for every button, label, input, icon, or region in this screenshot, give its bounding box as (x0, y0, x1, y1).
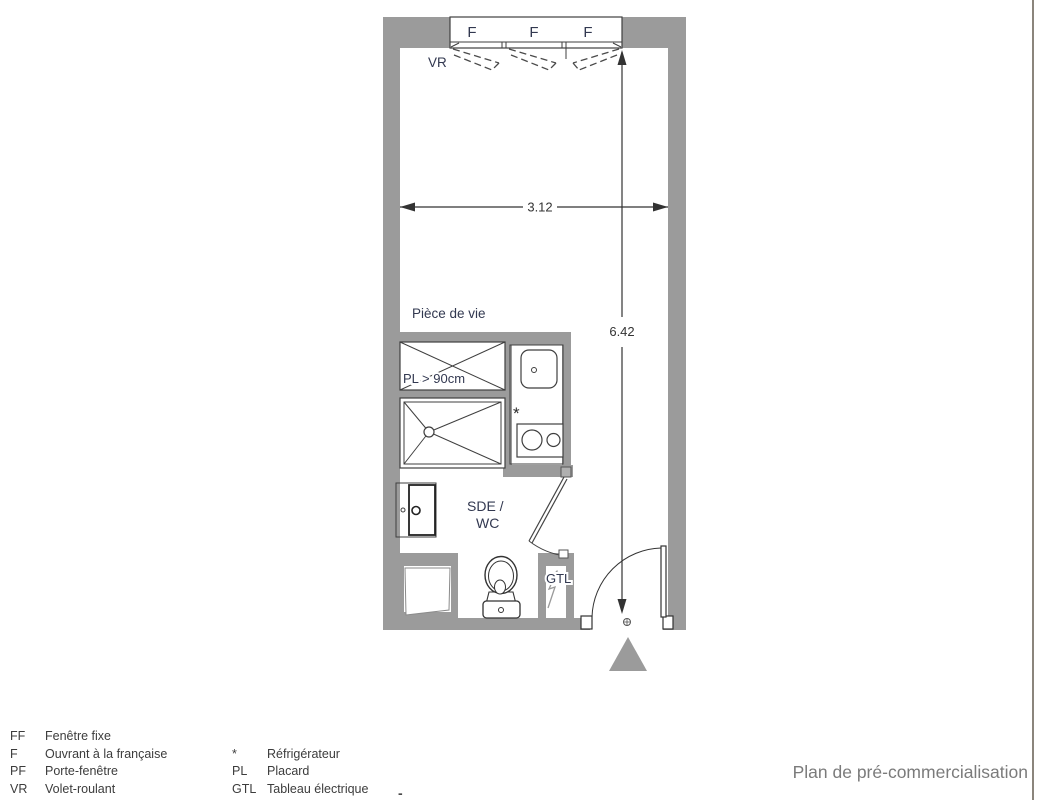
closet-label: PL > 90cm (403, 371, 465, 386)
legend-abbr: GTL (232, 781, 267, 799)
wall-left (383, 17, 400, 630)
legend-abbr: PF (10, 763, 45, 781)
window-pane-label-3: F (583, 24, 592, 41)
wall-storage-right (451, 566, 458, 618)
legend-abbr: * (232, 746, 267, 764)
electric-panel-label: GTL (546, 571, 571, 586)
closet: PL > 90cm (400, 342, 505, 390)
wall-storage-top (397, 553, 458, 566)
bathroom-door (529, 467, 571, 558)
legend-row: *Réfrigérateur (232, 746, 368, 764)
door-leaf (661, 546, 666, 617)
toilet-tank (483, 601, 520, 618)
legend-label: Porte-fenêtre (45, 764, 118, 778)
wall-gtl-left (538, 566, 546, 618)
sheet-right-border (1032, 0, 1034, 800)
window-pane-label-2: F (529, 24, 538, 41)
wall-bottom-left (383, 618, 590, 630)
wall-gtl-top (538, 553, 574, 566)
kitchen-sink (521, 350, 557, 388)
window-swing-dashes (453, 48, 619, 70)
sink-faucet (532, 368, 537, 373)
storage-outline (405, 568, 450, 615)
window-pane-label-1: F (467, 24, 476, 41)
legend-label: Placard (267, 764, 309, 778)
wall-right (668, 17, 686, 630)
shower (400, 398, 505, 468)
kitchenette: * (510, 345, 563, 464)
bathroom-label-line1: SDE / (467, 498, 504, 514)
floor-plan-drawing: F F F VR 3.12 6.42 PL > 90cm (0, 0, 1037, 800)
legend-label: Réfrigérateur (267, 747, 340, 761)
legend-abbr: PL (232, 763, 267, 781)
floor-plan-page: { "plan": { "title": "Plan de pré-commer… (0, 0, 1037, 800)
legend-label: Fenêtre fixe (45, 729, 111, 743)
fridge-marker: * (513, 404, 520, 423)
bathroom-label-line2: WC (476, 515, 499, 531)
legend-abbr: FF (10, 728, 45, 746)
window: F F F VR (428, 17, 622, 70)
legend-abbr: F (10, 746, 45, 764)
door-jamb-left (581, 616, 592, 629)
legend-row: FOuvrant à la française (10, 746, 167, 764)
dimension-width-value: 3.12 (527, 200, 552, 215)
toilet (483, 557, 520, 619)
legend-label: Volet-roulant (45, 782, 115, 796)
legend-label: Tableau électrique (267, 782, 368, 796)
legend-label: Ouvrant à la française (45, 747, 167, 761)
door-jamb-right (663, 616, 673, 629)
living-room-label: Pièce de vie (412, 306, 486, 321)
wall-closet-shower (400, 390, 503, 398)
legend-abbr: VR (10, 781, 45, 799)
wall-storage-left (397, 566, 404, 618)
vanity-cabinet (396, 483, 436, 537)
threshold-marker (624, 619, 631, 626)
shower-drain (424, 427, 434, 437)
door-swing-arc (592, 548, 661, 617)
dimension-width: 3.12 (400, 200, 668, 215)
dimension-height-value: 6.42 (609, 324, 634, 339)
legend-row: PFPorte-fenêtre (10, 763, 167, 781)
entrance-triangle-icon (609, 637, 647, 671)
legend-row: VRVolet-roulant (10, 781, 167, 799)
shutter-label: VR (428, 55, 447, 70)
legend-column-2: *Réfrigérateur PLPlacard GTLTableau élec… (232, 746, 368, 799)
footer-mark: - (398, 785, 403, 801)
entrance-door (581, 546, 673, 629)
cooktop (517, 424, 563, 457)
legend-row: GTLTableau électrique (232, 781, 368, 799)
legend-column-1: FFFenêtre fixe FOuvrant à la française P… (10, 728, 167, 798)
page-title: Plan de pré-commercialisation (793, 762, 1028, 783)
legend-row: FFFenêtre fixe (10, 728, 167, 746)
legend-row: PLPlacard (232, 763, 368, 781)
dimension-height: 6.42 (609, 50, 634, 614)
